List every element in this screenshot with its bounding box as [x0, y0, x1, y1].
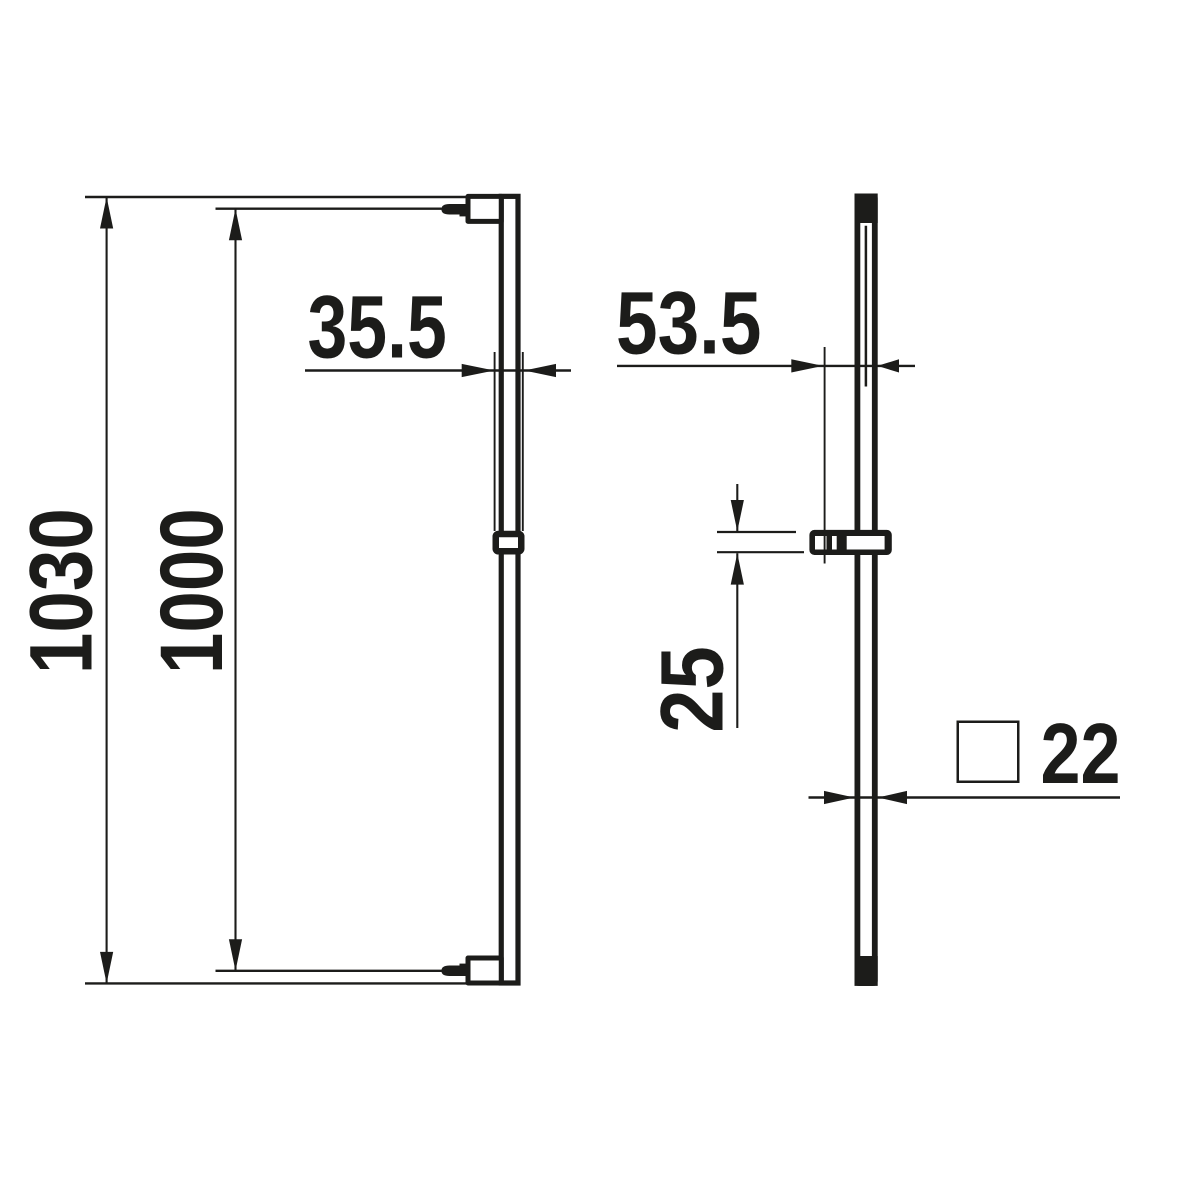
- svg-text:1000: 1000: [141, 508, 241, 674]
- svg-text:22: 22: [1041, 707, 1121, 802]
- svg-text:1030: 1030: [10, 508, 110, 674]
- svg-text:25: 25: [641, 646, 741, 733]
- svg-text:35.5: 35.5: [308, 277, 447, 377]
- svg-text:53.5: 53.5: [616, 273, 762, 373]
